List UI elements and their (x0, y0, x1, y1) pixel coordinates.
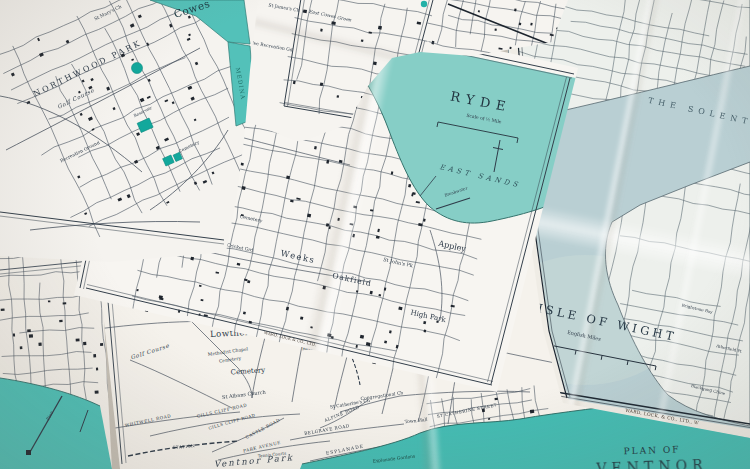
plan-of-label: PLAN OF (623, 445, 680, 456)
teal-feature-circle (132, 63, 143, 74)
pier-head (26, 450, 31, 455)
teal-feature-dot (421, 1, 427, 7)
bottom-border-inner (0, 216, 224, 244)
reservoir-square (137, 118, 153, 132)
ventnor-title: VENTNOR (596, 458, 708, 469)
main-roads (0, 48, 228, 230)
railway-line (448, 4, 556, 47)
island-land (605, 162, 750, 426)
photo-of-vintage-maps: Pier (0, 0, 750, 469)
